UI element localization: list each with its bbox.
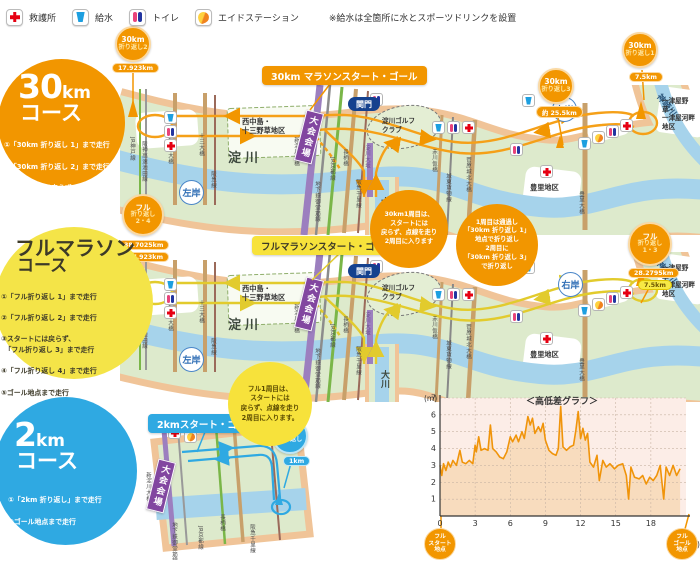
first-aid-icon: [540, 332, 553, 345]
badge-full-turn13: フル折り返し 1・3: [628, 222, 672, 266]
first-aid-icon: [164, 306, 177, 319]
bridge-label: 地下鉄御堂筋線: [313, 348, 321, 389]
svg-text:6: 6: [508, 519, 513, 528]
first-aid-icon: [462, 288, 475, 301]
toilet-icon: [129, 9, 146, 26]
bridge-label: 長柄橋: [218, 514, 226, 532]
step: ②「フル折り返し 2」まで走行: [1, 313, 151, 324]
course-30km-panel: 30km コース ①「30km 折り返し 1」まで走行 ②「30km 折り返し …: [0, 59, 125, 186]
elevation-chart: (m) ＜高低差グラフ＞ 12345670369121518 (km): [424, 392, 700, 565]
step: ①「フル折り返し 1」まで走行: [1, 292, 151, 303]
bridge-label: 城東貨物線: [444, 340, 452, 370]
bridge-label: 阪急線: [209, 171, 217, 189]
svg-text:3: 3: [473, 519, 478, 528]
area-golf: 淀川ゴルフ クラブ: [382, 284, 415, 301]
bridge-label: 長柄橋: [341, 149, 349, 167]
water-station-icon: [522, 94, 535, 107]
svg-text:1: 1: [431, 495, 436, 504]
bridge-label: 赤川仮橋: [430, 316, 438, 340]
note-30km-turn: 1周目は通過し 「30km 折り返し 1」 地点で折り返し 2周目に 「30km…: [456, 204, 538, 286]
svg-text:5: 5: [431, 427, 436, 436]
water-station-icon: [578, 304, 591, 317]
toilet-icon: [447, 121, 460, 134]
legend-aid-label: エイドステーション: [218, 11, 299, 24]
step: ①「2km 折り返し」まで走行: [8, 495, 135, 506]
first-aid-icon: [620, 119, 633, 132]
bridge-label: 地下鉄御堂筋線: [170, 522, 178, 560]
bridge-label: 阪急線: [209, 338, 217, 356]
turnaround-tower-icon: [275, 492, 283, 505]
course-2km-subtitle: コース: [0, 450, 137, 472]
svg-text:0: 0: [437, 519, 442, 528]
svg-text:6: 6: [431, 410, 436, 419]
svg-text:18: 18: [646, 519, 656, 528]
map-full-terrain: [120, 252, 700, 402]
aid-station-icon: [592, 298, 605, 311]
badge-30km-turn1-distance: 7.5km: [629, 72, 663, 82]
course-30km-title: 30km: [0, 59, 125, 102]
chart-title: ＜高低差グラフ＞: [424, 394, 700, 407]
first-aid-icon: [164, 139, 177, 152]
bridge-label: 豊里大橋: [577, 191, 585, 215]
bridge-label: 十三大橋: [197, 133, 205, 157]
bridge-label: 阪神高速池田線: [140, 141, 148, 182]
badge-30km-turn2: 30km折り返し2: [115, 26, 151, 62]
water-station-icon: [432, 288, 445, 301]
course-2km-title: 2km: [0, 397, 137, 450]
water-station-icon: [578, 137, 591, 150]
label-30km-start-goal: 30km マラソンスタート・ゴール: [262, 66, 427, 85]
course-full-title: フルマラソン: [0, 227, 153, 258]
badge-30km-turn3: 30km折り返し3: [538, 68, 574, 104]
checkpoint-badge: 関門: [348, 97, 380, 111]
bridge-label: 長柄橋: [341, 316, 349, 334]
bridge-label: 阪急千里線: [248, 524, 256, 554]
bridge-label: 菅原城北大橋: [464, 157, 472, 192]
step: ④ゴール地点まで走行: [4, 215, 123, 226]
toilet-icon: [447, 288, 460, 301]
aid-station-icon: [195, 9, 212, 26]
bridge-label: 阪急千里線: [354, 179, 362, 209]
toilet-icon: [164, 125, 177, 138]
okawa-label: 大川: [378, 370, 391, 388]
svg-text:9: 9: [543, 519, 548, 528]
right-bank-label: 右岸: [558, 272, 583, 297]
water-station-icon: [72, 9, 89, 26]
badge-2km-turn-distance: 1km: [283, 456, 310, 466]
bridge-label: 城東貨物線: [444, 173, 452, 203]
bridge-label: 淀川大堰: [363, 312, 371, 336]
bridge-label: 淀川大堰: [363, 145, 371, 169]
course-30km-steps: ①「30km 折り返し 1」まで走行 ②「30km 折り返し 2」まで走行 ③ス…: [0, 124, 125, 236]
course-2km-steps: ①「2km 折り返し」まで走行 ②ゴール地点まで走行: [0, 472, 137, 538]
svg-text:12: 12: [575, 519, 585, 528]
yodogawa-label: 淀川: [228, 147, 262, 166]
toilet-icon: [510, 143, 523, 156]
bridge-label: JR京都線: [328, 324, 336, 348]
step: ①「30km 折り返し 1」まで走行: [4, 140, 123, 151]
map-full: 大会会場 関門 右岸 左岸 淀川 神崎川 大川 西中島・ 十三野草地区 淀川ゴル…: [120, 252, 700, 402]
legend-first-aid-label: 救護所: [29, 11, 56, 24]
step: ④「フル折り返し 4」まで走行: [1, 366, 151, 377]
area-toyosato: 豊里地区: [530, 350, 559, 359]
area-hitotsuya: 一津屋野草・ 一津屋河畔 地区: [662, 97, 700, 131]
badge-30km-turn1: 30km折り返し1: [622, 32, 658, 68]
course-full-steps: ①「フル折り返し 1」まで走行 ②「フル折り返し 2」まで走行 ③スタートには戻…: [0, 276, 153, 409]
first-aid-icon: [462, 121, 475, 134]
note-30km-lap: 30km1周目は、 スタートには 戻らず、点線を走り 2周目に入ります: [370, 190, 448, 268]
course-2km-panel: 2km コース ①「2km 折り返し」まで走行 ②ゴール地点まで走行: [0, 397, 137, 545]
note-full-lap: フル1周目は、 スタートには 戻らず、点線を走り 2周目に入ります。: [228, 362, 312, 446]
bridge-label: JR京都線: [196, 526, 204, 550]
elevation-plot: 12345670369121518: [424, 392, 700, 534]
yodogawa-label: 淀川: [228, 314, 262, 333]
bridge-label: 地下鉄御堂筋線: [313, 181, 321, 222]
badge-full-goal-point: フル ゴール 地点: [666, 528, 698, 560]
svg-text:4: 4: [431, 444, 436, 453]
badge-full-turn13-distance1: 28.2795km: [628, 268, 679, 278]
legend-water-label: 給水: [95, 11, 113, 24]
checkpoint-badge: 関門: [348, 264, 380, 278]
badge-full-turn13-distance2: 7.5km: [638, 280, 672, 290]
toilet-icon: [164, 292, 177, 305]
water-station-icon: [164, 278, 177, 291]
svg-text:3: 3: [431, 461, 436, 470]
first-aid-icon: [6, 9, 23, 26]
svg-text:2: 2: [431, 478, 436, 487]
area-toyosato: 豊里地区: [530, 183, 559, 192]
left-bank-label: 左岸: [179, 180, 204, 205]
first-aid-icon: [540, 165, 553, 178]
svg-text:15: 15: [611, 519, 621, 528]
turnaround-tower-icon: [636, 101, 646, 119]
step: ②「30km 折り返し 2」まで走行: [4, 162, 123, 173]
left-bank-label: 左岸: [179, 347, 204, 372]
area-nishinakajima: 西中島・ 十三野草地区: [242, 117, 285, 136]
bridge-label: 十三大橋: [197, 300, 205, 324]
badge-30km-turn3-distance: 約 25.5km: [536, 106, 583, 118]
toilet-icon: [510, 310, 523, 323]
step: ③スタートには戻らず、 「フル折り返し 3」まで走行: [1, 334, 151, 355]
toilet-icon: [606, 292, 619, 305]
toilet-icon: [606, 125, 619, 138]
bridge-label: JR神戸線: [128, 137, 136, 161]
water-station-icon: [164, 111, 177, 124]
bridge-label: 菅原城北大橋: [464, 324, 472, 359]
legend-note: ※給水は全箇所に水とスポーツドリンクを設置: [329, 11, 516, 24]
area-nishinakajima: 西中島・ 十三野草地区: [242, 284, 285, 303]
course-map-poster: 救護所 給水 トイレ エイドステーション ※給水は全箇所に水とスポーツドリンクを…: [0, 0, 700, 565]
bridge-label: 赤川仮橋: [430, 149, 438, 173]
bridge-label: JR京都線: [328, 157, 336, 181]
area-golf: 淀川ゴルフ クラブ: [382, 117, 415, 134]
step: ②ゴール地点まで走行: [8, 517, 135, 528]
course-full-subtitle: コース: [0, 258, 153, 276]
bridge-label: 阪急千里線: [354, 346, 362, 376]
step: ③スタートには戻らず、 「30km 折り返し 3」まで走行: [4, 183, 123, 204]
first-aid-icon: [620, 286, 633, 299]
water-station-icon: [432, 121, 445, 134]
badge-full-start-point: フル スタート 地点: [424, 528, 456, 560]
aid-station-icon: [592, 131, 605, 144]
bridge-label: 豊里大橋: [577, 358, 585, 382]
legend: 救護所 給水 トイレ エイドステーション ※給水は全箇所に水とスポーツドリンクを…: [6, 5, 696, 29]
turnaround3-tower-icon: [556, 135, 564, 148]
legend-toilet-label: トイレ: [152, 11, 179, 24]
course-full-panel: フルマラソン コース ①「フル折り返し 1」まで走行 ②「フル折り返し 2」まで…: [0, 227, 153, 379]
start-tower-icon: [128, 99, 138, 117]
